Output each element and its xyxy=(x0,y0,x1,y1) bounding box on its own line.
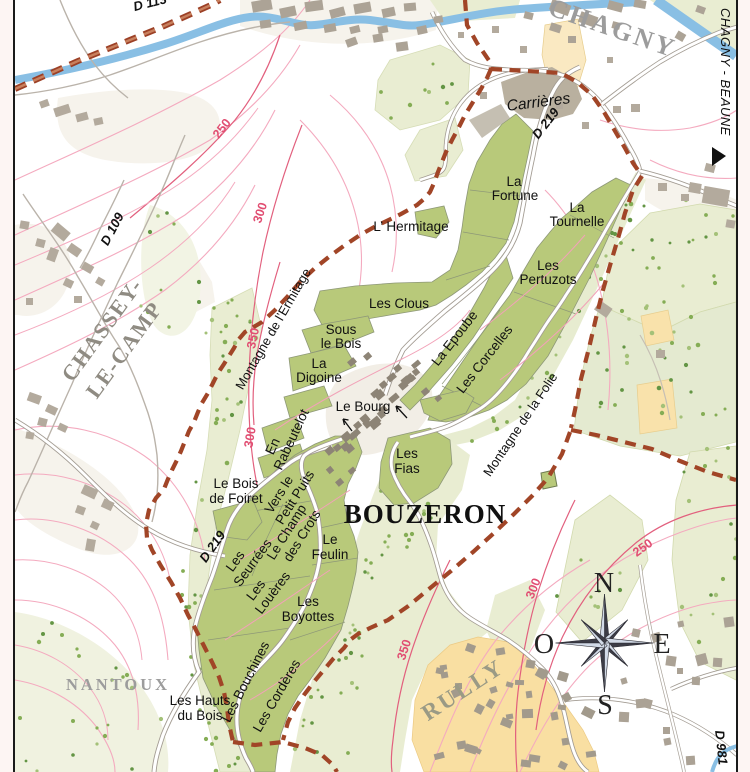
svg-text:Les: Les xyxy=(537,258,559,273)
svg-text:Digoine: Digoine xyxy=(296,370,342,385)
svg-text:E: E xyxy=(653,629,670,660)
svg-text:Le: Le xyxy=(322,532,337,547)
svg-text:Pertuzots: Pertuzots xyxy=(519,272,576,287)
svg-text:du Bois: du Bois xyxy=(177,708,222,723)
svg-text:Le Bois: Le Bois xyxy=(213,476,258,491)
svg-text:Boyottes: Boyottes xyxy=(282,609,335,624)
svg-text:S: S xyxy=(597,690,613,721)
svg-text:Les: Les xyxy=(297,594,319,609)
svg-text:La: La xyxy=(569,200,585,215)
svg-text:Les Clous: Les Clous xyxy=(369,296,429,311)
svg-text:Les Hauts: Les Hauts xyxy=(170,693,231,708)
svg-text:le Bois: le Bois xyxy=(321,336,362,351)
svg-text:La: La xyxy=(311,356,327,371)
svg-text:Sous: Sous xyxy=(326,322,357,337)
svg-text:BOUZERON: BOUZERON xyxy=(344,499,507,529)
svg-text:Feulin: Feulin xyxy=(312,547,349,562)
svg-text:O: O xyxy=(534,629,554,660)
svg-text:L’ Hermitage: L’ Hermitage xyxy=(373,219,448,234)
svg-text:Fortune: Fortune xyxy=(492,188,539,203)
svg-text:N: N xyxy=(594,568,614,599)
svg-text:de Foiret: de Foiret xyxy=(209,491,263,506)
svg-text:Tournelle: Tournelle xyxy=(550,214,605,229)
svg-text:Fias: Fias xyxy=(394,461,420,476)
svg-text:CHAGNY - BEAUNE: CHAGNY - BEAUNE xyxy=(718,8,733,136)
svg-text:La: La xyxy=(506,174,522,189)
svg-text:Les: Les xyxy=(396,446,418,461)
svg-text:NANTOUX: NANTOUX xyxy=(66,675,170,694)
svg-text:Le Bourg: Le Bourg xyxy=(336,399,391,414)
